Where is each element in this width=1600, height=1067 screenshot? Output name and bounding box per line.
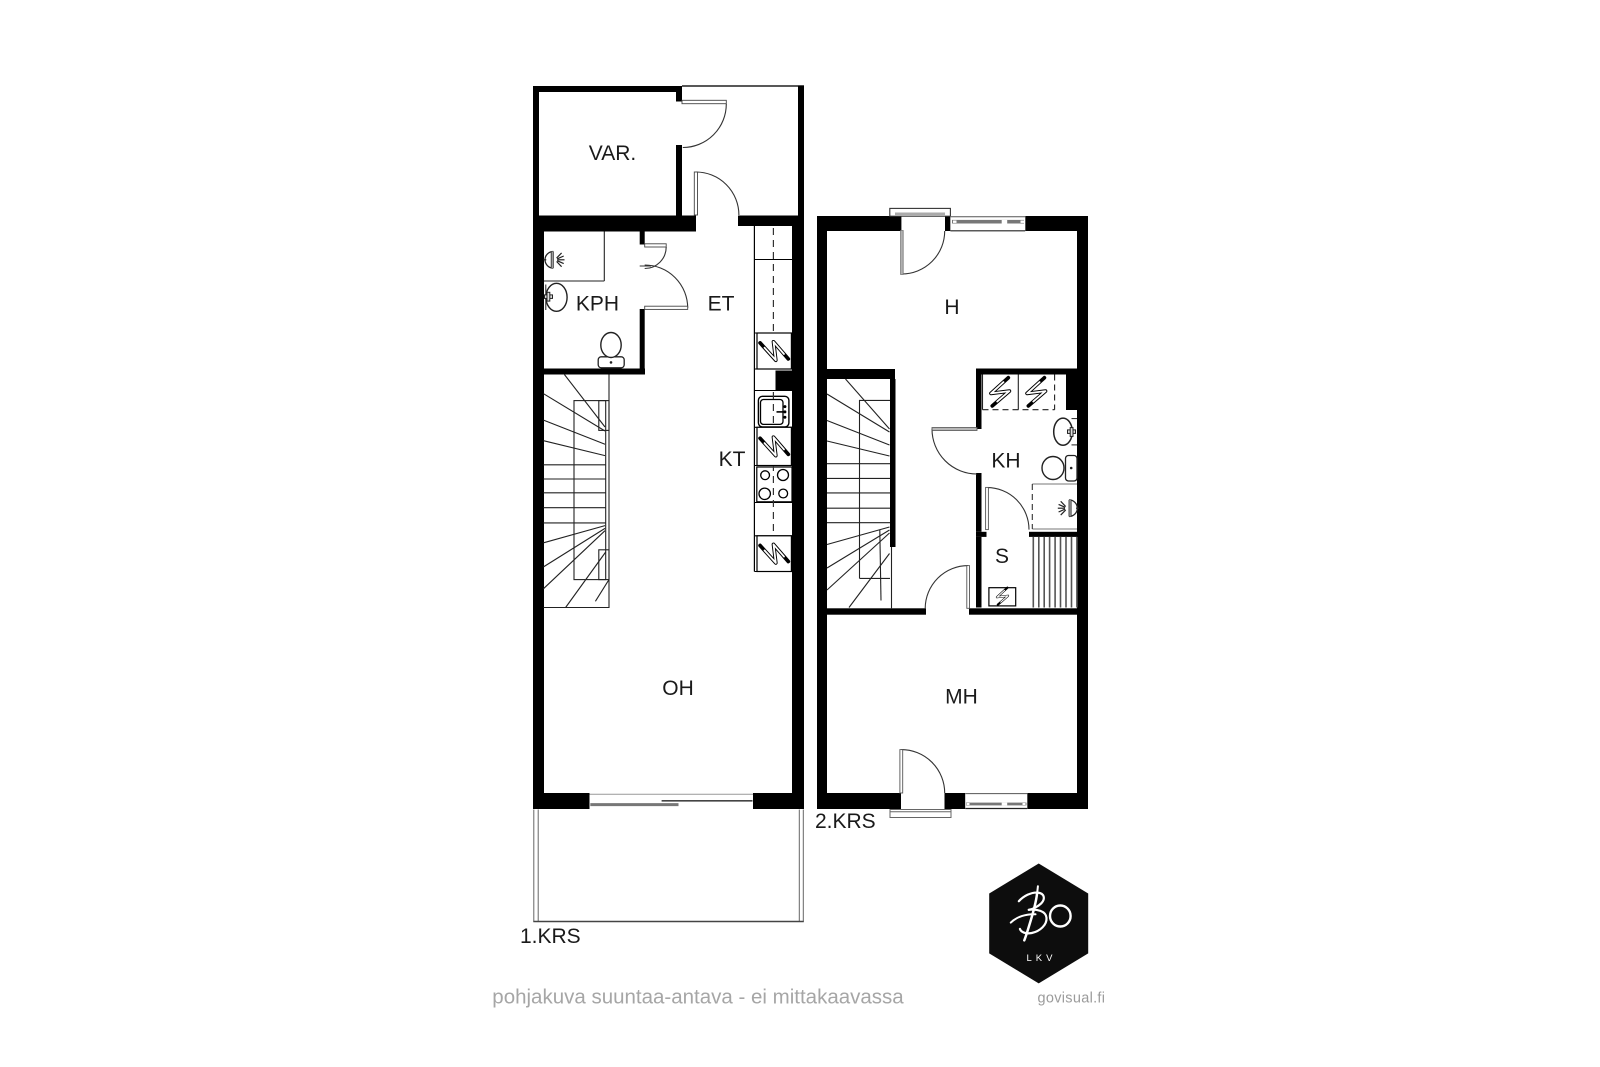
svg-text:S: S	[995, 545, 1009, 568]
svg-text:MH: MH	[945, 686, 978, 709]
svg-text:KT: KT	[719, 448, 746, 471]
svg-text:OH: OH	[662, 677, 694, 700]
svg-text:KH: KH	[991, 450, 1020, 473]
svg-text:govisual.fi: govisual.fi	[1038, 991, 1106, 1007]
svg-text:KPH: KPH	[576, 292, 619, 315]
svg-text:H: H	[944, 296, 959, 319]
svg-text:2.KRS: 2.KRS	[815, 810, 876, 833]
svg-text:LKV: LKV	[1027, 953, 1057, 964]
svg-text:1.KRS: 1.KRS	[520, 925, 581, 948]
svg-text:VAR.: VAR.	[589, 142, 636, 165]
svg-text:ET: ET	[708, 293, 735, 316]
svg-text:pohjakuva suuntaa-antava - ei: pohjakuva suuntaa-antava - ei mittakaava…	[492, 986, 904, 1009]
